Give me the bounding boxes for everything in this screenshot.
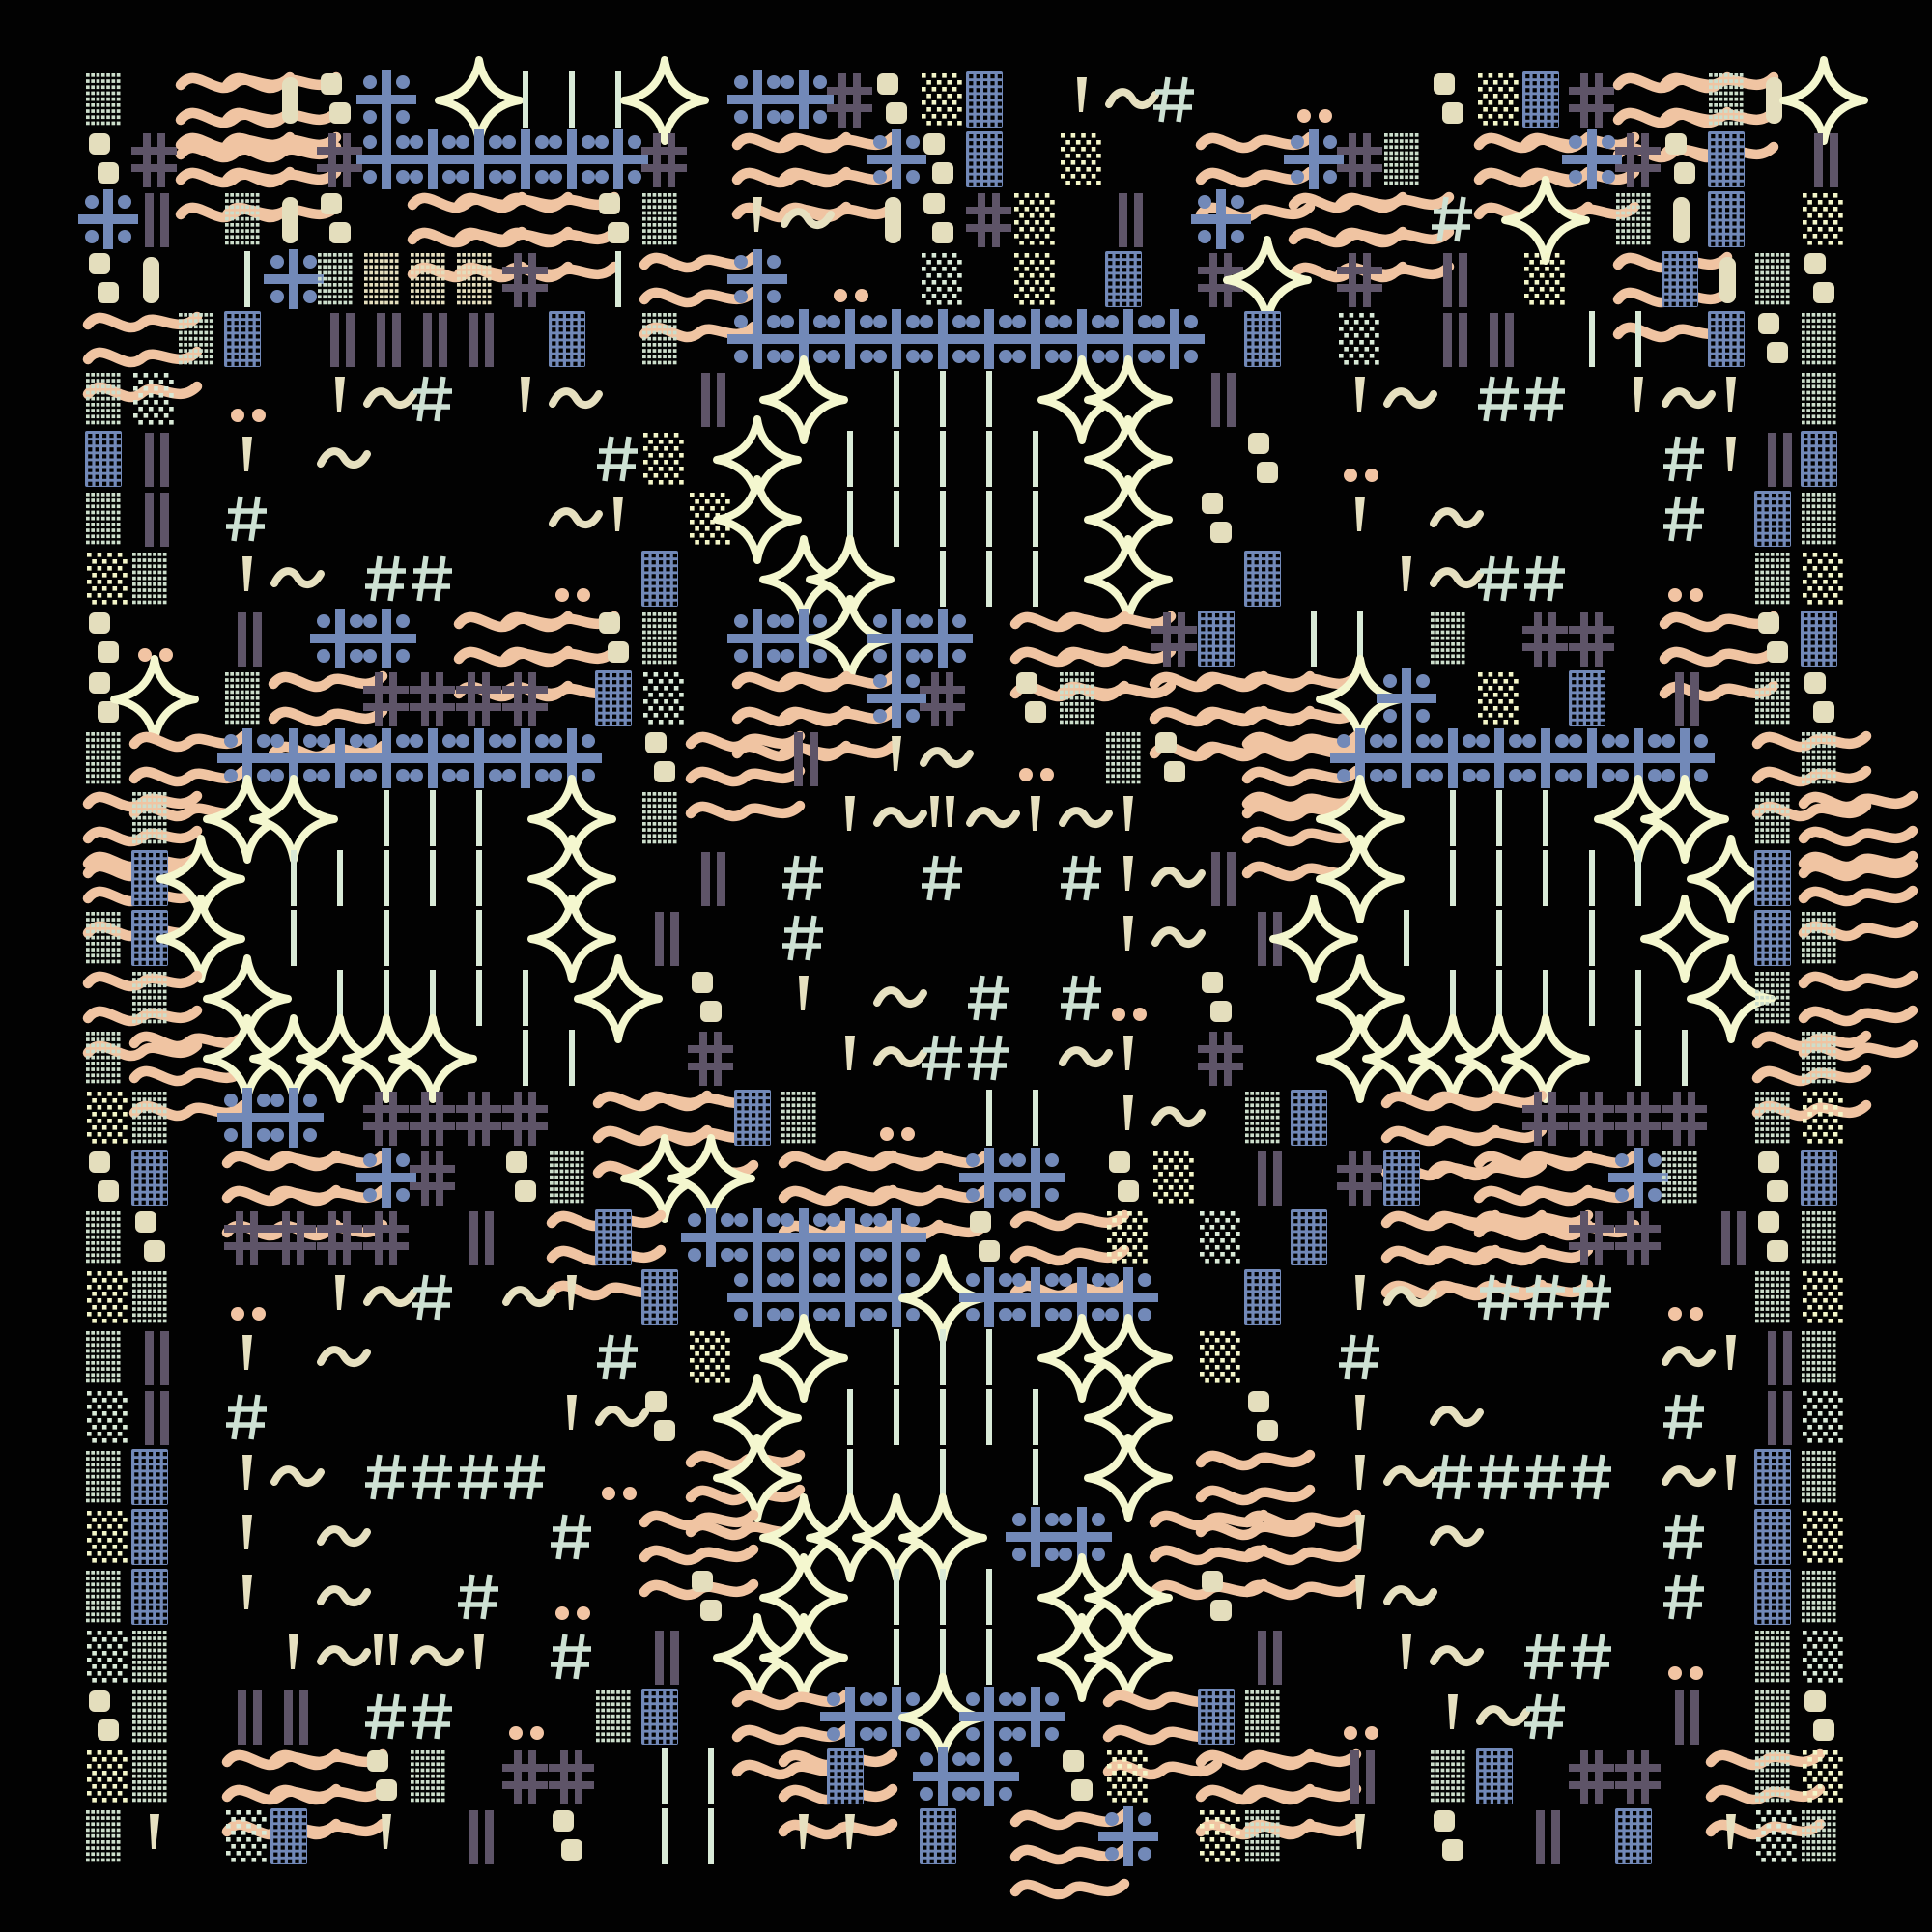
thin-vline-glyph <box>337 850 343 906</box>
weave-block-glyph <box>1708 131 1745 187</box>
weave-block-glyph <box>595 1209 632 1265</box>
dots-dense-block-glyph <box>86 1032 121 1083</box>
thin-vline-glyph <box>894 1329 899 1385</box>
cross-with-dots-glyph <box>1006 1148 1065 1207</box>
dots-dense-block-glyph <box>1431 1750 1465 1802</box>
weave-block-glyph <box>549 311 585 367</box>
thin-vline-glyph <box>1450 790 1456 846</box>
thin-vline-glyph <box>940 491 946 547</box>
dots-dense-block-glyph <box>1245 1690 1280 1742</box>
weave-block-glyph <box>966 71 1003 128</box>
thin-vline-glyph <box>291 850 297 906</box>
weave-block-glyph <box>1708 191 1745 247</box>
thin-vline-glyph <box>847 1389 853 1445</box>
weave-block-glyph <box>595 670 632 726</box>
dots-dense-block-glyph <box>1245 1810 1280 1861</box>
thin-vline-glyph <box>1033 1449 1038 1505</box>
glyph-quilt-artwork <box>0 0 1932 1932</box>
dots-dense-block-glyph <box>1755 1092 1790 1143</box>
weave-block-glyph <box>641 551 678 607</box>
cross-with-dots-glyph <box>867 668 926 728</box>
thin-vline-glyph <box>1589 970 1595 1026</box>
thin-vline-glyph <box>1635 311 1641 367</box>
dots-dense-block-glyph <box>1431 612 1465 664</box>
thin-vline-glyph <box>986 431 992 487</box>
cross-with-dots-glyph <box>588 129 648 189</box>
dots-dense-block-glyph <box>318 253 353 304</box>
thin-vline-glyph <box>430 790 436 846</box>
thin-vline-glyph <box>1543 850 1548 906</box>
dots-dense-block-glyph <box>1755 253 1790 304</box>
dots-dense-block-glyph <box>1802 912 1836 963</box>
dots-dense-block-glyph <box>1755 1271 1790 1322</box>
thin-vline-glyph <box>986 1389 992 1445</box>
weave-block-glyph <box>131 1509 168 1565</box>
thin-vline-glyph <box>1404 910 1409 966</box>
thin-vline-glyph <box>1450 850 1456 906</box>
cross-with-dots-glyph <box>867 129 926 189</box>
capsule-glyph <box>143 257 159 303</box>
thin-vline-glyph <box>894 1629 899 1685</box>
dots-dense-block-glyph <box>1802 493 1836 544</box>
capsule-glyph <box>282 77 298 124</box>
dots-dense-block-glyph <box>132 1750 167 1802</box>
weave-block-glyph <box>1754 850 1791 906</box>
dots-dense-block-glyph <box>1802 732 1836 783</box>
thin-vline-glyph <box>1496 850 1502 906</box>
weave-block-glyph <box>734 1090 771 1146</box>
weave-block-glyph <box>1244 311 1281 367</box>
dots-dense-block-glyph <box>364 253 399 304</box>
dots-dense-block-glyph <box>1755 1690 1790 1742</box>
weave-block-glyph <box>1754 910 1791 966</box>
thin-vline-glyph <box>476 970 482 1026</box>
dots-dense-block-glyph <box>1755 672 1790 724</box>
thin-vline-glyph <box>894 371 899 427</box>
thin-vline-glyph <box>384 790 389 846</box>
thin-vline-glyph <box>430 850 436 906</box>
dots-dense-block-glyph <box>1802 1211 1836 1263</box>
cross-with-dots-glyph <box>356 1148 416 1207</box>
thin-vline-glyph <box>476 850 482 906</box>
capsule-glyph <box>282 197 298 243</box>
thin-vline-glyph <box>940 1329 946 1385</box>
thin-vline-glyph <box>986 1090 992 1146</box>
thin-vline-glyph <box>1033 1389 1038 1445</box>
thin-vline-glyph <box>569 71 575 128</box>
weave-block-glyph <box>1522 71 1559 128</box>
thin-vline-glyph <box>986 371 992 427</box>
weave-block-glyph <box>827 1748 864 1804</box>
thin-vline-glyph <box>1496 790 1502 846</box>
weave-block-glyph <box>1754 491 1791 547</box>
dots-dense-block-glyph <box>550 1151 584 1203</box>
cross-with-dots-glyph <box>264 1088 324 1148</box>
dots-dense-block-glyph <box>1709 73 1744 125</box>
thin-vline-glyph <box>894 1569 899 1625</box>
dots-dense-block-glyph <box>1106 732 1141 783</box>
weave-block-glyph <box>1801 611 1837 667</box>
dots-dense-block-glyph <box>86 493 121 544</box>
thin-vline-glyph <box>1589 910 1595 966</box>
weave-block-glyph <box>1801 431 1837 487</box>
weave-block-glyph <box>1198 1689 1235 1745</box>
cross-with-dots-glyph <box>1284 129 1344 189</box>
weave-block-glyph <box>641 1689 678 1745</box>
thin-vline-glyph <box>1589 850 1595 906</box>
dots-dense-block-glyph <box>132 1092 167 1143</box>
dots-dense-block-glyph <box>642 612 677 664</box>
capsule-glyph <box>885 197 901 243</box>
thin-vline-glyph <box>662 1748 668 1804</box>
thin-vline-glyph <box>894 491 899 547</box>
thin-vline-glyph <box>894 1389 899 1445</box>
weave-block-glyph <box>1105 251 1142 307</box>
dots-dense-block-glyph <box>1616 193 1651 244</box>
thin-vline-glyph <box>940 551 946 607</box>
capsule-glyph <box>1673 197 1690 243</box>
dots-dense-block-glyph <box>457 253 492 304</box>
dots-dense-block-glyph <box>1802 1810 1836 1861</box>
cross-with-dots-glyph <box>78 189 138 249</box>
thin-vline-glyph <box>986 1629 992 1685</box>
thin-vline-glyph <box>1543 790 1548 846</box>
thin-vline-glyph <box>940 431 946 487</box>
dots-dense-block-glyph <box>1662 1151 1697 1203</box>
dots-dense-block-glyph <box>1802 313 1836 364</box>
thin-vline-glyph <box>894 431 899 487</box>
thin-vline-glyph <box>1311 611 1317 667</box>
dots-dense-block-glyph <box>86 1211 121 1263</box>
thin-vline-glyph <box>384 910 389 966</box>
thin-vline-glyph <box>708 1808 714 1864</box>
dots-dense-block-glyph <box>86 373 121 424</box>
cross-with-dots-glyph <box>913 609 973 668</box>
thin-vline-glyph <box>1635 970 1641 1026</box>
weave-block-glyph <box>1198 611 1235 667</box>
thin-vline-glyph <box>291 910 297 966</box>
dots-dense-block-glyph <box>86 1571 121 1622</box>
weave-block-glyph <box>1244 551 1281 607</box>
thin-vline-glyph <box>986 1329 992 1385</box>
thin-vline-glyph <box>523 71 528 128</box>
weave-block-glyph <box>1383 1150 1420 1206</box>
thin-vline-glyph <box>1033 551 1038 607</box>
dots-dense-block-glyph <box>1755 1631 1790 1682</box>
thin-vline-glyph <box>847 431 853 487</box>
weave-block-glyph <box>1708 311 1745 367</box>
dots-dense-block-glyph <box>642 313 677 364</box>
cross-with-dots-glyph <box>1098 1806 1158 1866</box>
dots-dense-block-glyph <box>225 672 260 724</box>
weave-block-glyph <box>85 431 122 487</box>
dots-dense-block-glyph <box>596 1690 631 1742</box>
thin-vline-glyph <box>986 1569 992 1625</box>
dots-dense-block-glyph <box>86 73 121 125</box>
thin-vline-glyph <box>476 790 482 846</box>
thin-vline-glyph <box>523 1030 528 1086</box>
dots-dense-block-glyph <box>132 1271 167 1322</box>
dots-dense-block-glyph <box>1755 972 1790 1023</box>
cross-with-dots-glyph <box>356 70 416 129</box>
cross-with-dots-glyph <box>1608 1148 1668 1207</box>
dots-dense-block-glyph <box>132 972 167 1023</box>
dots-dense-block-glyph <box>86 732 121 783</box>
weave-block-glyph <box>1569 670 1605 726</box>
weave-block-glyph <box>224 311 261 367</box>
weave-block-glyph <box>131 1449 168 1505</box>
cross-with-dots-glyph <box>264 249 324 309</box>
thin-vline-glyph <box>940 1569 946 1625</box>
weave-block-glyph <box>920 1808 956 1864</box>
thin-vline-glyph <box>986 491 992 547</box>
cross-with-dots-glyph <box>1145 309 1205 369</box>
thin-vline-glyph <box>523 970 528 1026</box>
thin-vline-glyph <box>615 251 621 307</box>
dots-dense-block-glyph <box>642 792 677 843</box>
weave-block-glyph <box>131 1569 168 1625</box>
dots-dense-block-glyph <box>1802 373 1836 424</box>
weave-block-glyph <box>1244 1269 1281 1325</box>
thin-vline-glyph <box>615 71 621 128</box>
thin-vline-glyph <box>384 850 389 906</box>
thin-vline-glyph <box>1033 431 1038 487</box>
weave-block-glyph <box>1801 1150 1837 1206</box>
weave-block-glyph <box>1754 1509 1791 1565</box>
capsule-glyph <box>1719 257 1736 303</box>
thin-vline-glyph <box>1589 311 1595 367</box>
cross-with-dots-glyph <box>1562 129 1622 189</box>
thin-vline-glyph <box>569 1030 575 1086</box>
weave-block-glyph <box>1291 1209 1327 1265</box>
weave-block-glyph <box>966 131 1003 187</box>
dots-dense-block-glyph <box>225 193 260 244</box>
thin-vline-glyph <box>662 1808 668 1864</box>
thin-vline-glyph <box>1682 1030 1688 1086</box>
weave-block-glyph <box>1662 251 1698 307</box>
cross-with-dots-glyph <box>356 609 416 668</box>
cross-with-dots-glyph <box>774 70 834 129</box>
dots-dense-block-glyph <box>1755 792 1790 843</box>
thin-vline-glyph <box>708 1748 714 1804</box>
weave-block-glyph <box>1754 1569 1791 1625</box>
dots-dense-block-glyph <box>132 792 167 843</box>
weave-block-glyph <box>1615 1808 1652 1864</box>
dots-dense-block-glyph <box>411 253 445 304</box>
dots-dense-block-glyph <box>1802 1331 1836 1382</box>
thin-vline-glyph <box>1033 491 1038 547</box>
cross-with-dots-glyph <box>867 1207 926 1267</box>
weave-block-glyph <box>1291 1090 1327 1146</box>
dots-dense-block-glyph <box>1755 553 1790 604</box>
dots-dense-block-glyph <box>86 1810 121 1861</box>
dots-dense-block-glyph <box>1755 1750 1790 1802</box>
dots-dense-block-glyph <box>1802 1032 1836 1083</box>
thin-vline-glyph <box>1635 1030 1641 1086</box>
dots-dense-block-glyph <box>132 553 167 604</box>
dots-dense-block-glyph <box>411 1750 445 1802</box>
thin-vline-glyph <box>244 251 250 307</box>
thin-vline-glyph <box>940 1389 946 1445</box>
dots-dense-block-glyph <box>132 1690 167 1742</box>
thin-vline-glyph <box>1033 1090 1038 1146</box>
thin-vline-glyph <box>940 371 946 427</box>
thin-vline-glyph <box>1496 910 1502 966</box>
dots-dense-block-glyph <box>86 912 121 963</box>
thin-vline-glyph <box>1635 850 1641 906</box>
weave-block-glyph <box>1754 1449 1791 1505</box>
weave-block-glyph <box>270 1808 307 1864</box>
dots-dense-block-glyph <box>1384 133 1419 185</box>
dots-dense-block-glyph <box>86 1451 121 1502</box>
dots-dense-block-glyph <box>1802 1451 1836 1502</box>
thin-vline-glyph <box>986 551 992 607</box>
dots-dense-block-glyph <box>1802 1571 1836 1622</box>
cross-with-dots-glyph <box>1377 668 1436 728</box>
weave-block-glyph <box>1476 1748 1513 1804</box>
cross-with-dots-glyph <box>727 249 787 309</box>
dots-dense-block-glyph <box>1245 1092 1280 1143</box>
dots-dense-block-glyph <box>781 1092 816 1143</box>
cross-with-dots-glyph <box>1191 189 1251 249</box>
weave-block-glyph <box>641 1269 678 1325</box>
dots-dense-block-glyph <box>642 193 677 244</box>
weave-block-glyph <box>131 1150 168 1206</box>
glyph-canvas <box>0 0 1932 1932</box>
dots-dense-block-glyph <box>1060 672 1094 724</box>
thin-vline-glyph <box>476 910 482 966</box>
dots-dense-block-glyph <box>179 313 213 364</box>
cross-with-dots-glyph <box>959 1747 1019 1806</box>
dots-dense-block-glyph <box>132 1631 167 1682</box>
dots-dense-block-glyph <box>86 1331 121 1382</box>
cross-with-dots-glyph <box>1006 1687 1065 1747</box>
